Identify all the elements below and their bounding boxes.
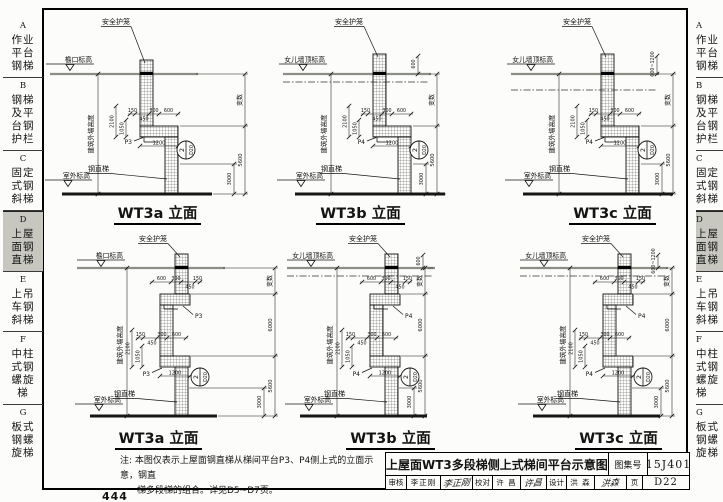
variable-dim-label: 变数 <box>664 94 672 106</box>
platform-label: P3 <box>195 313 203 320</box>
lower-ladder-hatch <box>165 137 178 194</box>
atlas-number-label: 图集号 <box>608 453 647 475</box>
dim-label: 450 <box>357 341 366 347</box>
detail-bubble: 2D20 <box>634 368 652 386</box>
wall-height-label: 建筑外墙高度 <box>325 325 334 365</box>
elevation-label: 檐口标高 <box>96 251 123 260</box>
dim-label: 150 <box>589 108 598 114</box>
elevation-triangle-icon <box>97 261 105 267</box>
dim-label: 5600 <box>665 379 671 392</box>
middle-ladder-hatch <box>603 305 616 356</box>
diagram-title-wt3a-bottom: WT3a 立面 <box>96 427 221 448</box>
elevation-label: 檐口标高 <box>65 55 92 64</box>
dim-label: 150 <box>636 276 645 282</box>
elevation-label: 室外标高 <box>296 171 323 180</box>
reviewer-name: 李正刚 <box>406 476 440 489</box>
platform-hatch <box>601 126 639 137</box>
elevation-triangle-icon <box>95 405 103 411</box>
upper-ladder-hatch <box>373 54 386 126</box>
upper-platform-hatch <box>370 294 400 305</box>
detail-bubble: 2D20 <box>638 141 656 159</box>
note-line-2: 梯多段梯的组合。详见D5~D7页。 <box>120 484 384 499</box>
sidebar-item-D: D上屋面钢直梯 <box>696 211 723 272</box>
platform-label: P4 <box>638 313 646 320</box>
sidebar-item-G: G板式钢螺旋梯 <box>696 405 723 464</box>
dim-label: 600 <box>157 276 166 282</box>
wall-height-label: 建筑外墙高度 <box>115 325 124 365</box>
dim-label: 3000 <box>419 173 425 186</box>
elevation-label: 女儿墙顶标高 <box>292 251 333 260</box>
sidebar-item-E: E上吊车钢斜梯 <box>696 272 723 332</box>
drawing-sheet: A作业平台钢梯B钢梯及平台钢护栏C固定式钢斜梯D上屋面钢直梯E上吊车钢斜梯F中柱… <box>0 0 723 502</box>
reviewer-signature: 李正刚 <box>442 475 470 490</box>
lower-ladder-hatch <box>618 367 631 416</box>
elevation-diagram-bot-c: 安全护笼女儿墙顶标高建筑外墙高度室外标高600300450150P4150450… <box>500 230 688 426</box>
checker-name: 许 昌 <box>492 476 520 489</box>
dim-label: 3000 <box>654 396 660 409</box>
elevation-triangle-icon <box>525 181 533 187</box>
ladder-label: 钢直梯 <box>324 389 345 398</box>
elevation-diagram-top-b: 安全护笼女儿墙顶标高建筑外墙高度室外标高15045030060021001050… <box>265 10 447 206</box>
sidebar-item-C: C固定式钢斜梯 <box>696 151 723 211</box>
dim-label: 300 <box>367 332 376 338</box>
elevation-label: 室外标高 <box>524 171 551 180</box>
cage-label: 安全护笼 <box>582 234 610 243</box>
elevation-triangle-icon <box>307 261 315 267</box>
cage-label: 安全护笼 <box>139 234 167 243</box>
platform-label: P4 <box>353 371 361 378</box>
dim-label: 450 <box>185 285 194 291</box>
reviewer-label: 审核 <box>386 476 406 489</box>
dim-label: 2100 <box>125 342 131 355</box>
dim-label: 5600 <box>418 379 424 392</box>
checker-signature: 许昌 <box>524 475 543 489</box>
ladder-label: 钢直梯 <box>549 164 570 173</box>
detail-bubble: 2D20 <box>177 141 195 159</box>
right-index-tabs: A作业平台钢梯B钢梯及平台钢护栏C固定式钢斜梯D上屋面钢直梯E上吊车钢斜梯F中柱… <box>692 18 723 464</box>
upper-ladder-hatch <box>601 54 614 126</box>
elevation-label: 女儿墙顶标高 <box>284 55 325 64</box>
dim-label: 600 <box>172 332 181 338</box>
sidebar-item-B: B钢梯及平台钢护栏 <box>3 78 43 151</box>
dim-label: 2100 <box>109 115 115 128</box>
sidebar-item-C: C固定式钢斜梯 <box>3 151 43 211</box>
detail-bubble: 2D20 <box>191 368 209 386</box>
dim-label: 600 <box>382 332 391 338</box>
lower-platform-hatch <box>160 356 190 367</box>
variable-dim-label: 变数 <box>428 94 436 106</box>
elevation-triangle-icon <box>540 261 548 267</box>
lower-ladder-hatch <box>175 367 188 416</box>
dim-label: 150 <box>193 276 202 282</box>
dim-label: 150 <box>403 276 412 282</box>
elevation-diagram-bot-a: 安全护笼檐口标高建筑外墙高度室外标高600300450150P315045030… <box>50 230 295 426</box>
cage-label: 安全护笼 <box>563 17 591 26</box>
dim-label: 1050 <box>119 122 125 135</box>
platform-hatch <box>373 126 411 137</box>
wall-height-label: 建筑外墙高度 <box>319 114 328 154</box>
dim-label: 450 <box>600 117 609 123</box>
detail-sheet: D20 <box>650 145 656 155</box>
elevation-label: 女儿墙顶标高 <box>525 251 566 260</box>
dim-label: 600~1200 <box>651 248 657 273</box>
dim-label: 5600 <box>430 153 436 166</box>
checker-label: 校对 <box>472 476 492 489</box>
dim-label: 3000 <box>407 396 413 409</box>
dim-label: 3000 <box>227 173 233 186</box>
detail-sheet: D20 <box>189 145 195 155</box>
dim-label: 1200 <box>614 141 627 147</box>
ladder-label: 钢直梯 <box>114 389 135 398</box>
detail-sheet: D20 <box>646 372 652 382</box>
dim-label: 450 <box>147 341 156 347</box>
cage-label: 安全护笼 <box>102 17 130 26</box>
dim-label: 600~1200 <box>650 51 656 76</box>
dim-label: 150 <box>346 332 355 338</box>
elevation-diagram-top-c: 安全护笼女儿墙顶标高建筑外墙高度室外标高15045030060021001050… <box>455 10 688 206</box>
dim-label: 2100 <box>335 342 341 355</box>
dim-label: 300 <box>381 276 390 282</box>
dim-label: 150 <box>128 108 137 114</box>
ladder-label: 钢直梯 <box>88 164 109 173</box>
platform-label: P4 <box>586 139 594 146</box>
dim-label: 5600 <box>666 153 672 166</box>
note-label: 注: <box>120 456 132 466</box>
detail-number: 2 <box>639 148 647 152</box>
ladder-label: 钢直梯 <box>321 164 342 173</box>
diagram-title-wt3c-top: WT3c 立面 <box>550 202 675 223</box>
dim-label: 600 <box>615 332 624 338</box>
dim-label: 1050 <box>352 122 358 135</box>
dim-label: 600 <box>164 108 173 114</box>
variable-dim-label: 变数 <box>663 275 671 287</box>
sidebar-item-G: G板式钢螺旋梯 <box>3 405 43 464</box>
dim-label: 1050 <box>135 350 141 363</box>
elevation-label: 室外标高 <box>63 171 90 180</box>
ladder-label: 钢直梯 <box>557 389 578 398</box>
dim-label: 2100 <box>570 115 576 128</box>
dim-label: 300 <box>171 276 180 282</box>
note-line-1: 本图仅表示上屋面钢直梯从梯间平台P3、P4侧上式的立面示意，钢直 <box>120 456 373 481</box>
detail-number: 2 <box>402 375 410 379</box>
wall-height-label: 建筑外墙高度 <box>547 114 556 154</box>
dim-label: 450 <box>372 117 381 123</box>
title-block: 上屋面WT3多段梯侧上式梯间平台示意图 图集号 15J401 审核 李正刚 李正… <box>385 452 690 490</box>
page-number: D22 <box>642 476 689 489</box>
elevation-triangle-icon <box>299 65 307 71</box>
dim-label: 1050 <box>578 350 584 363</box>
dim-label: 300 <box>149 108 158 114</box>
dim-label: 2100 <box>342 115 348 128</box>
upper-platform-hatch <box>160 294 190 305</box>
upper-platform-hatch <box>603 294 633 305</box>
page-label: 页 <box>626 476 642 489</box>
middle-ladder-hatch <box>160 305 173 356</box>
variable-dim-label: 变数 <box>416 275 424 287</box>
dim-label: 600 <box>367 276 376 282</box>
cage-label: 安全护笼 <box>349 234 377 243</box>
sidebar-item-B: B钢梯及平台钢护栏 <box>696 78 723 151</box>
diagram-title-wt3a-top: WT3a 立面 <box>95 202 220 223</box>
platform-hatch <box>140 126 178 137</box>
middle-ladder-hatch <box>370 305 383 356</box>
dim-label: 300 <box>610 108 619 114</box>
detail-bubble: 2D20 <box>410 141 428 159</box>
dim-label: 1200 <box>153 141 166 147</box>
lower-platform-hatch <box>603 356 633 367</box>
diagram-title-wt3b-bottom: WT3b 立面 <box>328 427 453 448</box>
dim-label: 600 <box>600 276 609 282</box>
diagram-title-wt3c-bottom: WT3c 立面 <box>556 427 681 448</box>
lower-ladder-hatch <box>398 137 411 194</box>
left-index-tabs: A作业平台钢梯B钢梯及平台钢护栏C固定式钢斜梯D上屋面钢直梯E上吊车钢斜梯F中柱… <box>3 18 43 464</box>
dim-label: 450 <box>590 341 599 347</box>
detail-sheet: D20 <box>203 372 209 382</box>
elevation-diagram-top-a: 安全护笼檐口标高建筑外墙高度室外标高15045030060021001050P3… <box>45 10 260 206</box>
sheet-note: 注: 本图仅表示上屋面钢直梯从梯间平台P3、P4侧上式的立面示意，钢直 梯多段梯… <box>120 454 384 499</box>
platform-label: P4 <box>405 313 413 320</box>
dim-label: 600 <box>625 108 634 114</box>
platform-label: P3 <box>125 139 133 146</box>
dim-label: 3000 <box>257 396 263 409</box>
wall-height-label: 建筑外墙高度 <box>86 114 95 154</box>
diagram-title-wt3b-top: WT3b 立面 <box>298 202 423 223</box>
dim-label: 600 <box>411 59 417 68</box>
dim-label: 300 <box>600 332 609 338</box>
platform-label: P4 <box>358 139 366 146</box>
detail-bubble: 2D20 <box>401 368 419 386</box>
sidebar-item-E: E上吊车钢斜梯 <box>3 272 43 332</box>
dim-label: 450 <box>628 285 637 291</box>
dim-label: 6000 <box>418 318 424 331</box>
dim-label: 300 <box>157 332 166 338</box>
dim-label: 2100 <box>568 342 574 355</box>
elevation-triangle-icon <box>305 405 313 411</box>
wall-height-label: 建筑外墙高度 <box>558 325 567 365</box>
sidebar-item-A: A作业平台钢梯 <box>696 18 723 78</box>
sidebar-item-F: F中柱式钢螺旋梯 <box>3 332 43 405</box>
dim-label: 300 <box>382 108 391 114</box>
detail-number: 2 <box>192 375 200 379</box>
elevation-triangle-icon <box>297 181 305 187</box>
upper-ladder-hatch <box>140 60 153 126</box>
variable-dim-label: 变数 <box>236 94 244 106</box>
dim-label: 3000 <box>655 173 661 186</box>
sidebar-item-D: D上屋面钢直梯 <box>3 211 43 272</box>
designer-name: 洪 森 <box>566 476 594 489</box>
footer-page-number: 444 <box>102 490 128 502</box>
dim-label: 600 <box>397 108 406 114</box>
detail-number: 2 <box>635 375 643 379</box>
dim-label: 450 <box>139 117 148 123</box>
detail-number: 2 <box>178 148 186 152</box>
designer-signature: 洪森 <box>601 475 620 489</box>
elevation-diagram-bot-b: 安全护笼女儿墙顶标高建筑外墙高度室外标高600300450150P4150450… <box>268 230 450 426</box>
dim-label: 600 <box>416 256 422 265</box>
detail-number: 2 <box>411 148 419 152</box>
detail-sheet: D20 <box>422 145 428 155</box>
platform-label: P3 <box>143 371 151 378</box>
sidebar-item-A: A作业平台钢梯 <box>3 18 43 78</box>
elevation-triangle-icon <box>527 65 535 71</box>
dim-label: 150 <box>136 332 145 338</box>
dim-label: 6000 <box>665 318 671 331</box>
sidebar-item-F: F中柱式钢螺旋梯 <box>696 332 723 405</box>
lower-ladder-hatch <box>626 137 639 194</box>
elevation-triangle-icon <box>66 65 74 71</box>
elevation-triangle-icon <box>538 405 546 411</box>
dim-label: 1050 <box>580 122 586 135</box>
sheet-title: 上屋面WT3多段梯侧上式梯间平台示意图 <box>386 453 608 475</box>
dim-label: 1050 <box>345 350 351 363</box>
dim-label: 1200 <box>386 141 399 147</box>
lower-platform-hatch <box>370 356 400 367</box>
dim-label: 300 <box>614 276 623 282</box>
atlas-number: 15J401 <box>647 453 689 475</box>
cage-label: 安全护笼 <box>335 17 363 26</box>
dim-label: 150 <box>579 332 588 338</box>
platform-label: P4 <box>586 371 594 378</box>
elevation-triangle-icon <box>64 181 72 187</box>
dim-label: 150 <box>361 108 370 114</box>
designer-label: 设计 <box>546 476 566 489</box>
lower-ladder-hatch <box>385 367 398 416</box>
elevation-label: 女儿墙顶标高 <box>512 55 553 64</box>
dim-label: 450 <box>395 285 404 291</box>
dim-label: 5600 <box>238 153 244 166</box>
